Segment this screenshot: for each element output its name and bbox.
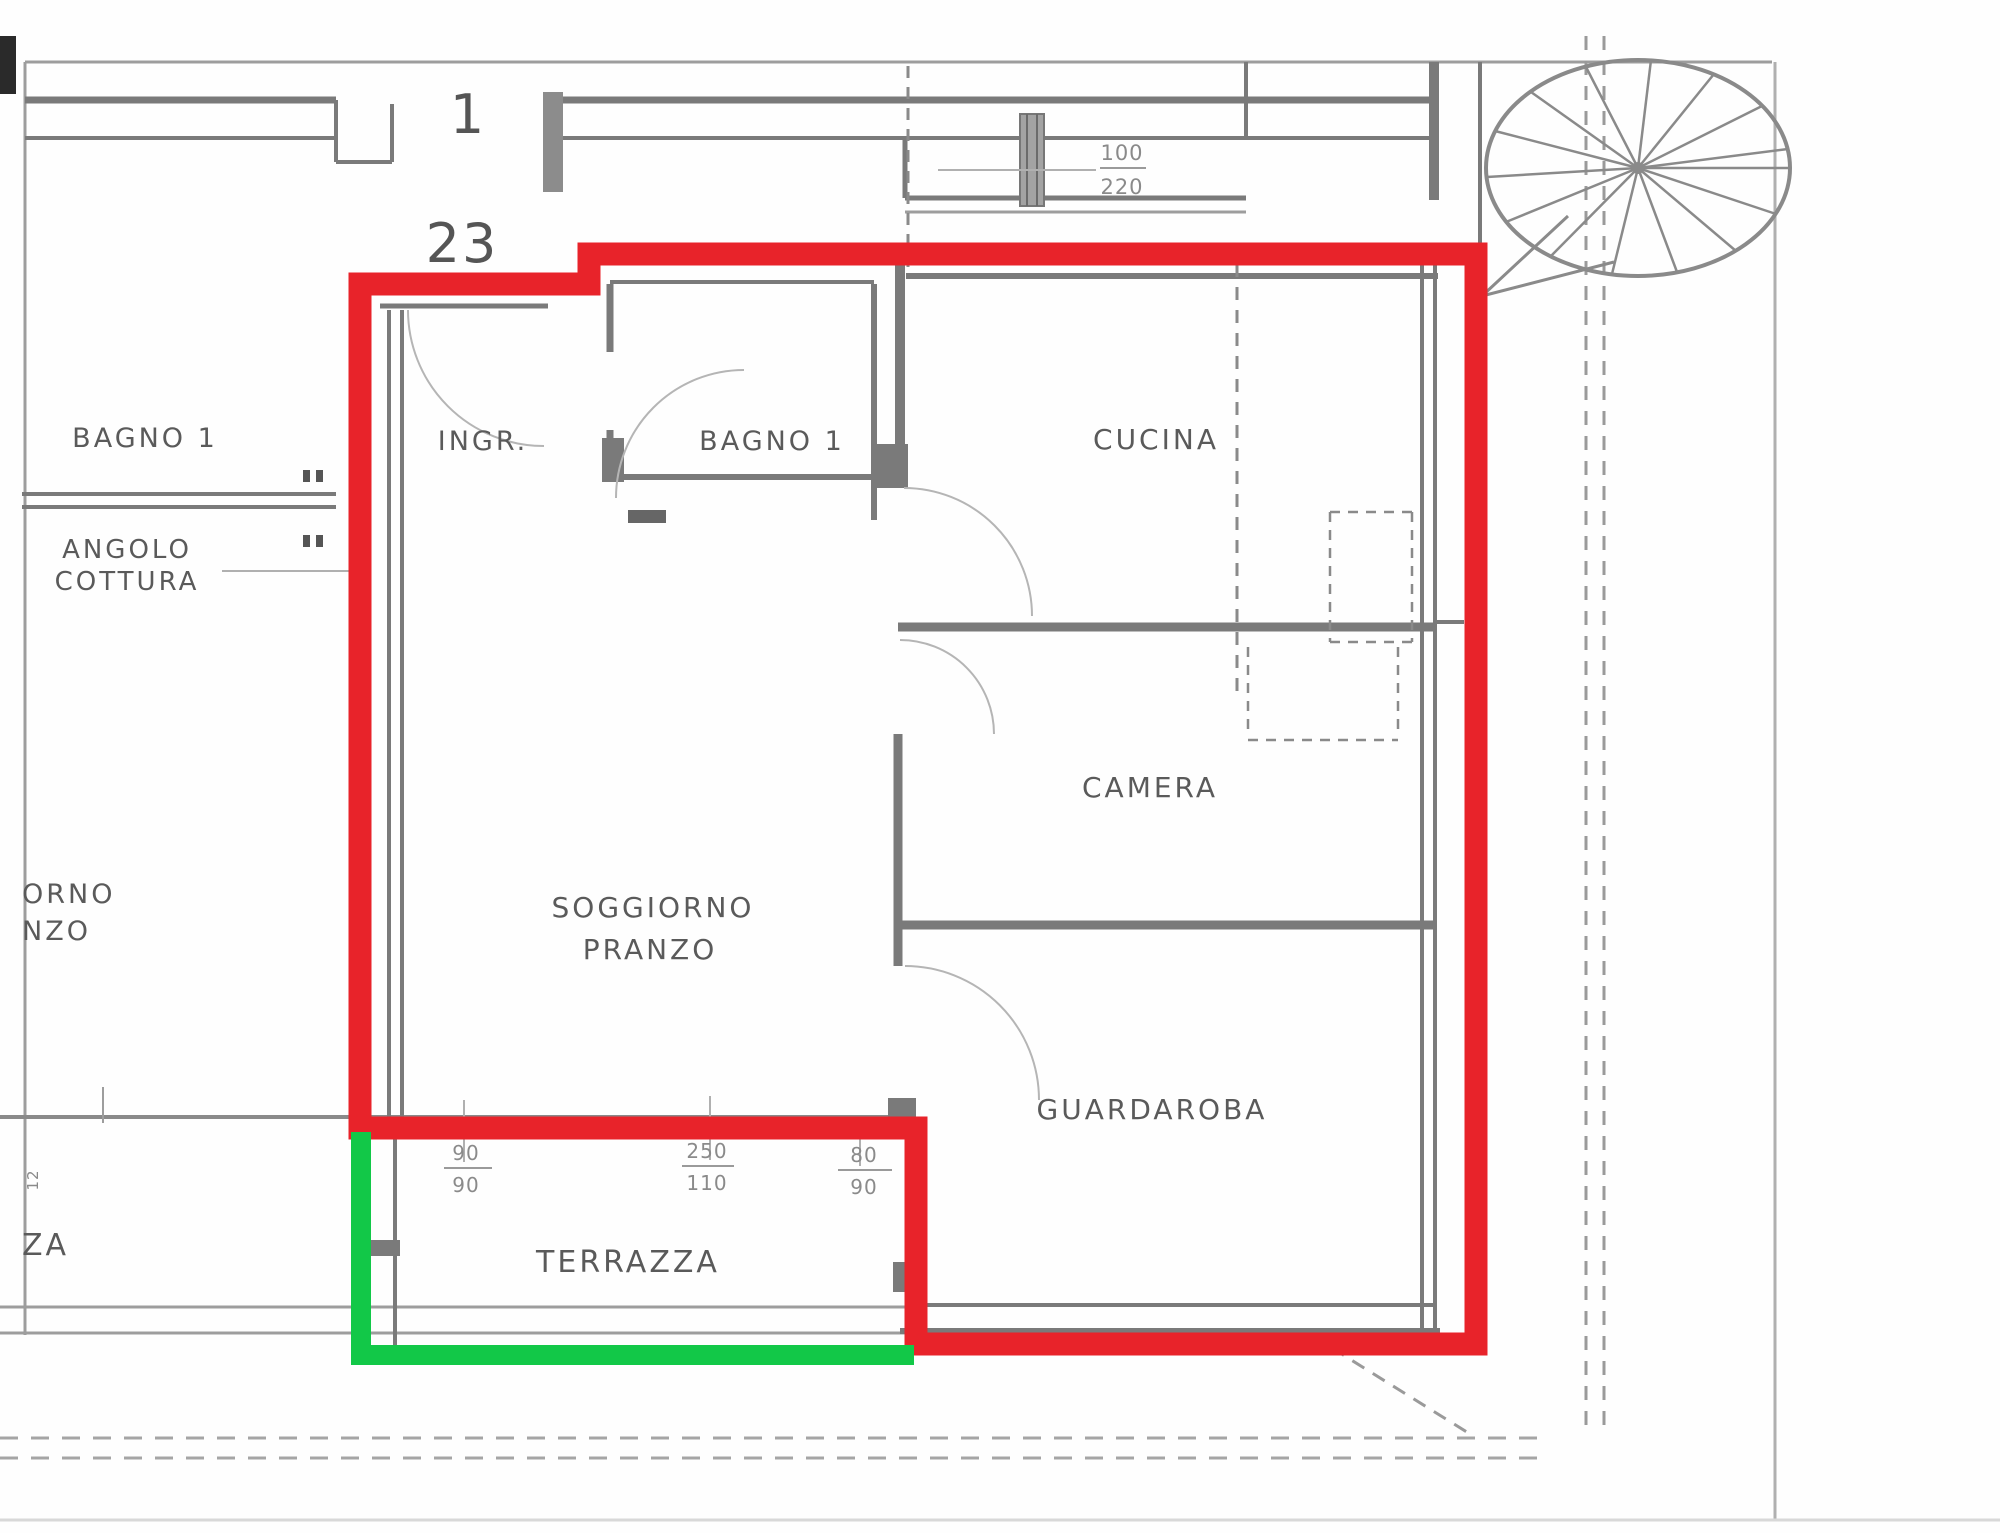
- room-label-angolo: ANGOLO: [62, 535, 192, 565]
- dimension-labels: 100 220 90 90 250 110 80 90: [444, 141, 1146, 1199]
- room-label-camera: CAMERA: [1082, 771, 1218, 804]
- room-label-soggiorno: SOGGIORNO: [552, 891, 755, 924]
- dimension-entrance: 100 220: [1100, 141, 1146, 199]
- scan-artifact: [0, 36, 16, 94]
- dimension-terrace-right: 80 90: [838, 1143, 892, 1199]
- spiral-staircase: [1482, 60, 1790, 296]
- dimension-entrance-bottom: 220: [1100, 175, 1143, 199]
- dimension-terrace-right-bottom: 90: [850, 1175, 877, 1199]
- room-label-terrazza-cut: ZA: [22, 1228, 69, 1263]
- room-label-bagno-inner: BAGNO 1: [699, 426, 845, 457]
- dimension-terrace-mid-bottom: 110: [686, 1171, 727, 1195]
- door-arc-cucina: [904, 488, 1032, 616]
- building-number-label: 1: [450, 83, 486, 146]
- dimension-terrace-left-bottom: 90: [452, 1173, 479, 1197]
- room-label-guardaroba: GUARDAROBA: [1037, 1093, 1268, 1126]
- side-dimension-label: 12: [24, 1169, 42, 1190]
- room-label-bagno-left: BAGNO 1: [72, 423, 218, 454]
- door-arc-camera: [900, 640, 994, 734]
- dashed-diagonal-line: [1332, 1348, 1470, 1434]
- room-label-terrazza: TERRAZZA: [535, 1245, 720, 1280]
- room-label-soggiorno-cut-2: NZO: [22, 916, 91, 947]
- apartment-number-label: 23: [426, 212, 499, 275]
- room-label-cottura: COTTURA: [55, 567, 200, 597]
- dimension-terrace-mid-top: 250: [686, 1139, 727, 1163]
- apartment-23-red-outline: [360, 254, 1476, 1344]
- wall-pillar: [543, 92, 563, 192]
- floor-plan-drawing: 1 23 BAGNO 1 ANGOLO COTTURA INGR. BAGNO …: [0, 0, 2000, 1533]
- door-sill: [628, 510, 666, 523]
- terrace-green-outline: [361, 1132, 914, 1355]
- door-arc-guardaroba: [905, 966, 1039, 1100]
- dimension-terrace-left-top: 90: [452, 1141, 479, 1165]
- dimension-terrace-right-top: 80: [850, 1143, 877, 1167]
- dimension-terrace-mid: 250 110: [682, 1139, 734, 1195]
- dashed-cabinet-camera: [1248, 647, 1398, 740]
- floor-plan-page: 1 23 BAGNO 1 ANGOLO COTTURA INGR. BAGNO …: [0, 0, 2000, 1533]
- room-label-pranzo: PRANZO: [583, 933, 718, 966]
- dimension-terrace-left: 90 90: [444, 1141, 492, 1197]
- room-label-ingresso: INGR.: [438, 426, 528, 457]
- dimension-entrance-top: 100: [1100, 141, 1143, 165]
- wall-pillar: [1020, 114, 1044, 206]
- room-label-soggiorno-cut-1: ORNO: [22, 879, 115, 910]
- room-label-cucina: CUCINA: [1093, 423, 1219, 456]
